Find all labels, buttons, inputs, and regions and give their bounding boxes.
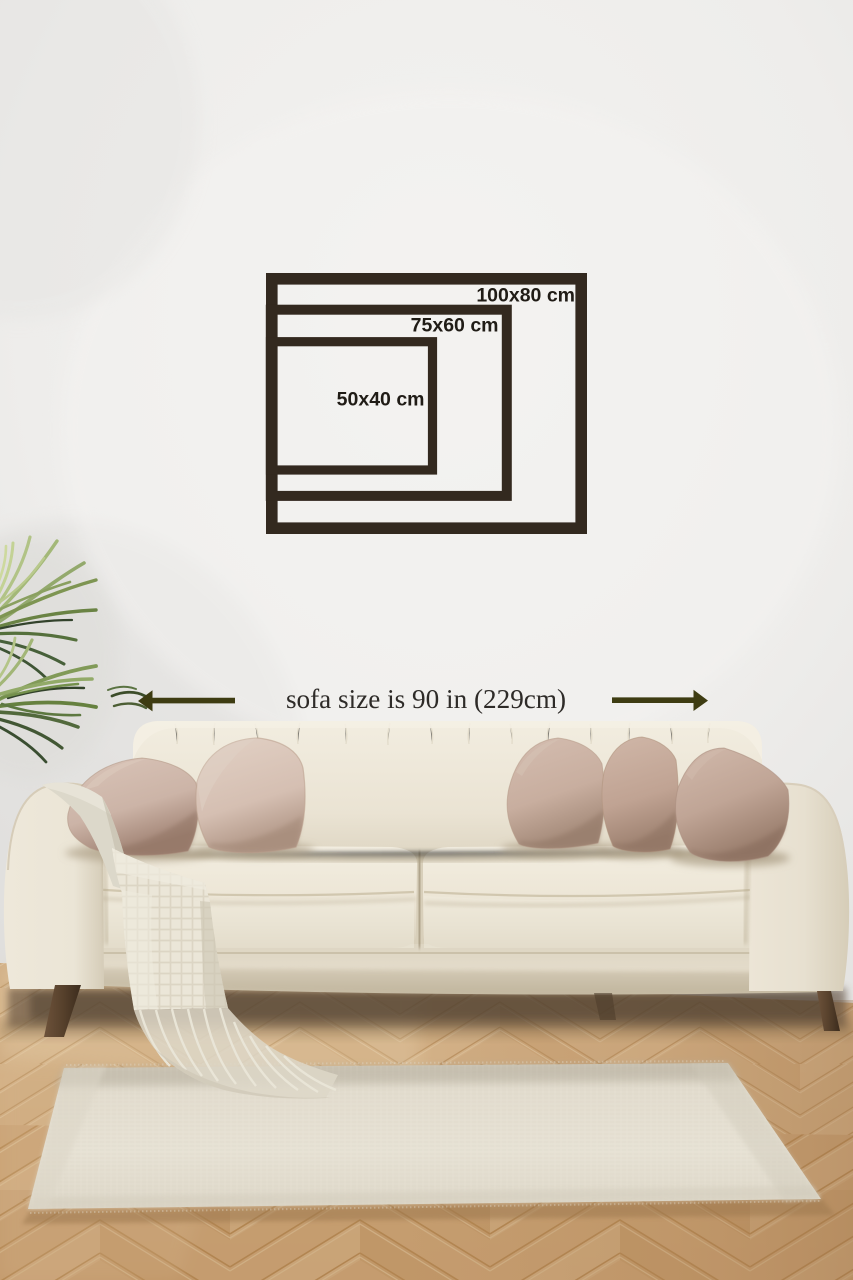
svg-text:75x60 cm: 75x60 cm bbox=[411, 314, 499, 336]
svg-text:sofa size is 90 in (229cm): sofa size is 90 in (229cm) bbox=[286, 684, 566, 714]
svg-text:50x40 cm: 50x40 cm bbox=[337, 388, 425, 410]
svg-text:100x80 cm: 100x80 cm bbox=[476, 285, 575, 307]
